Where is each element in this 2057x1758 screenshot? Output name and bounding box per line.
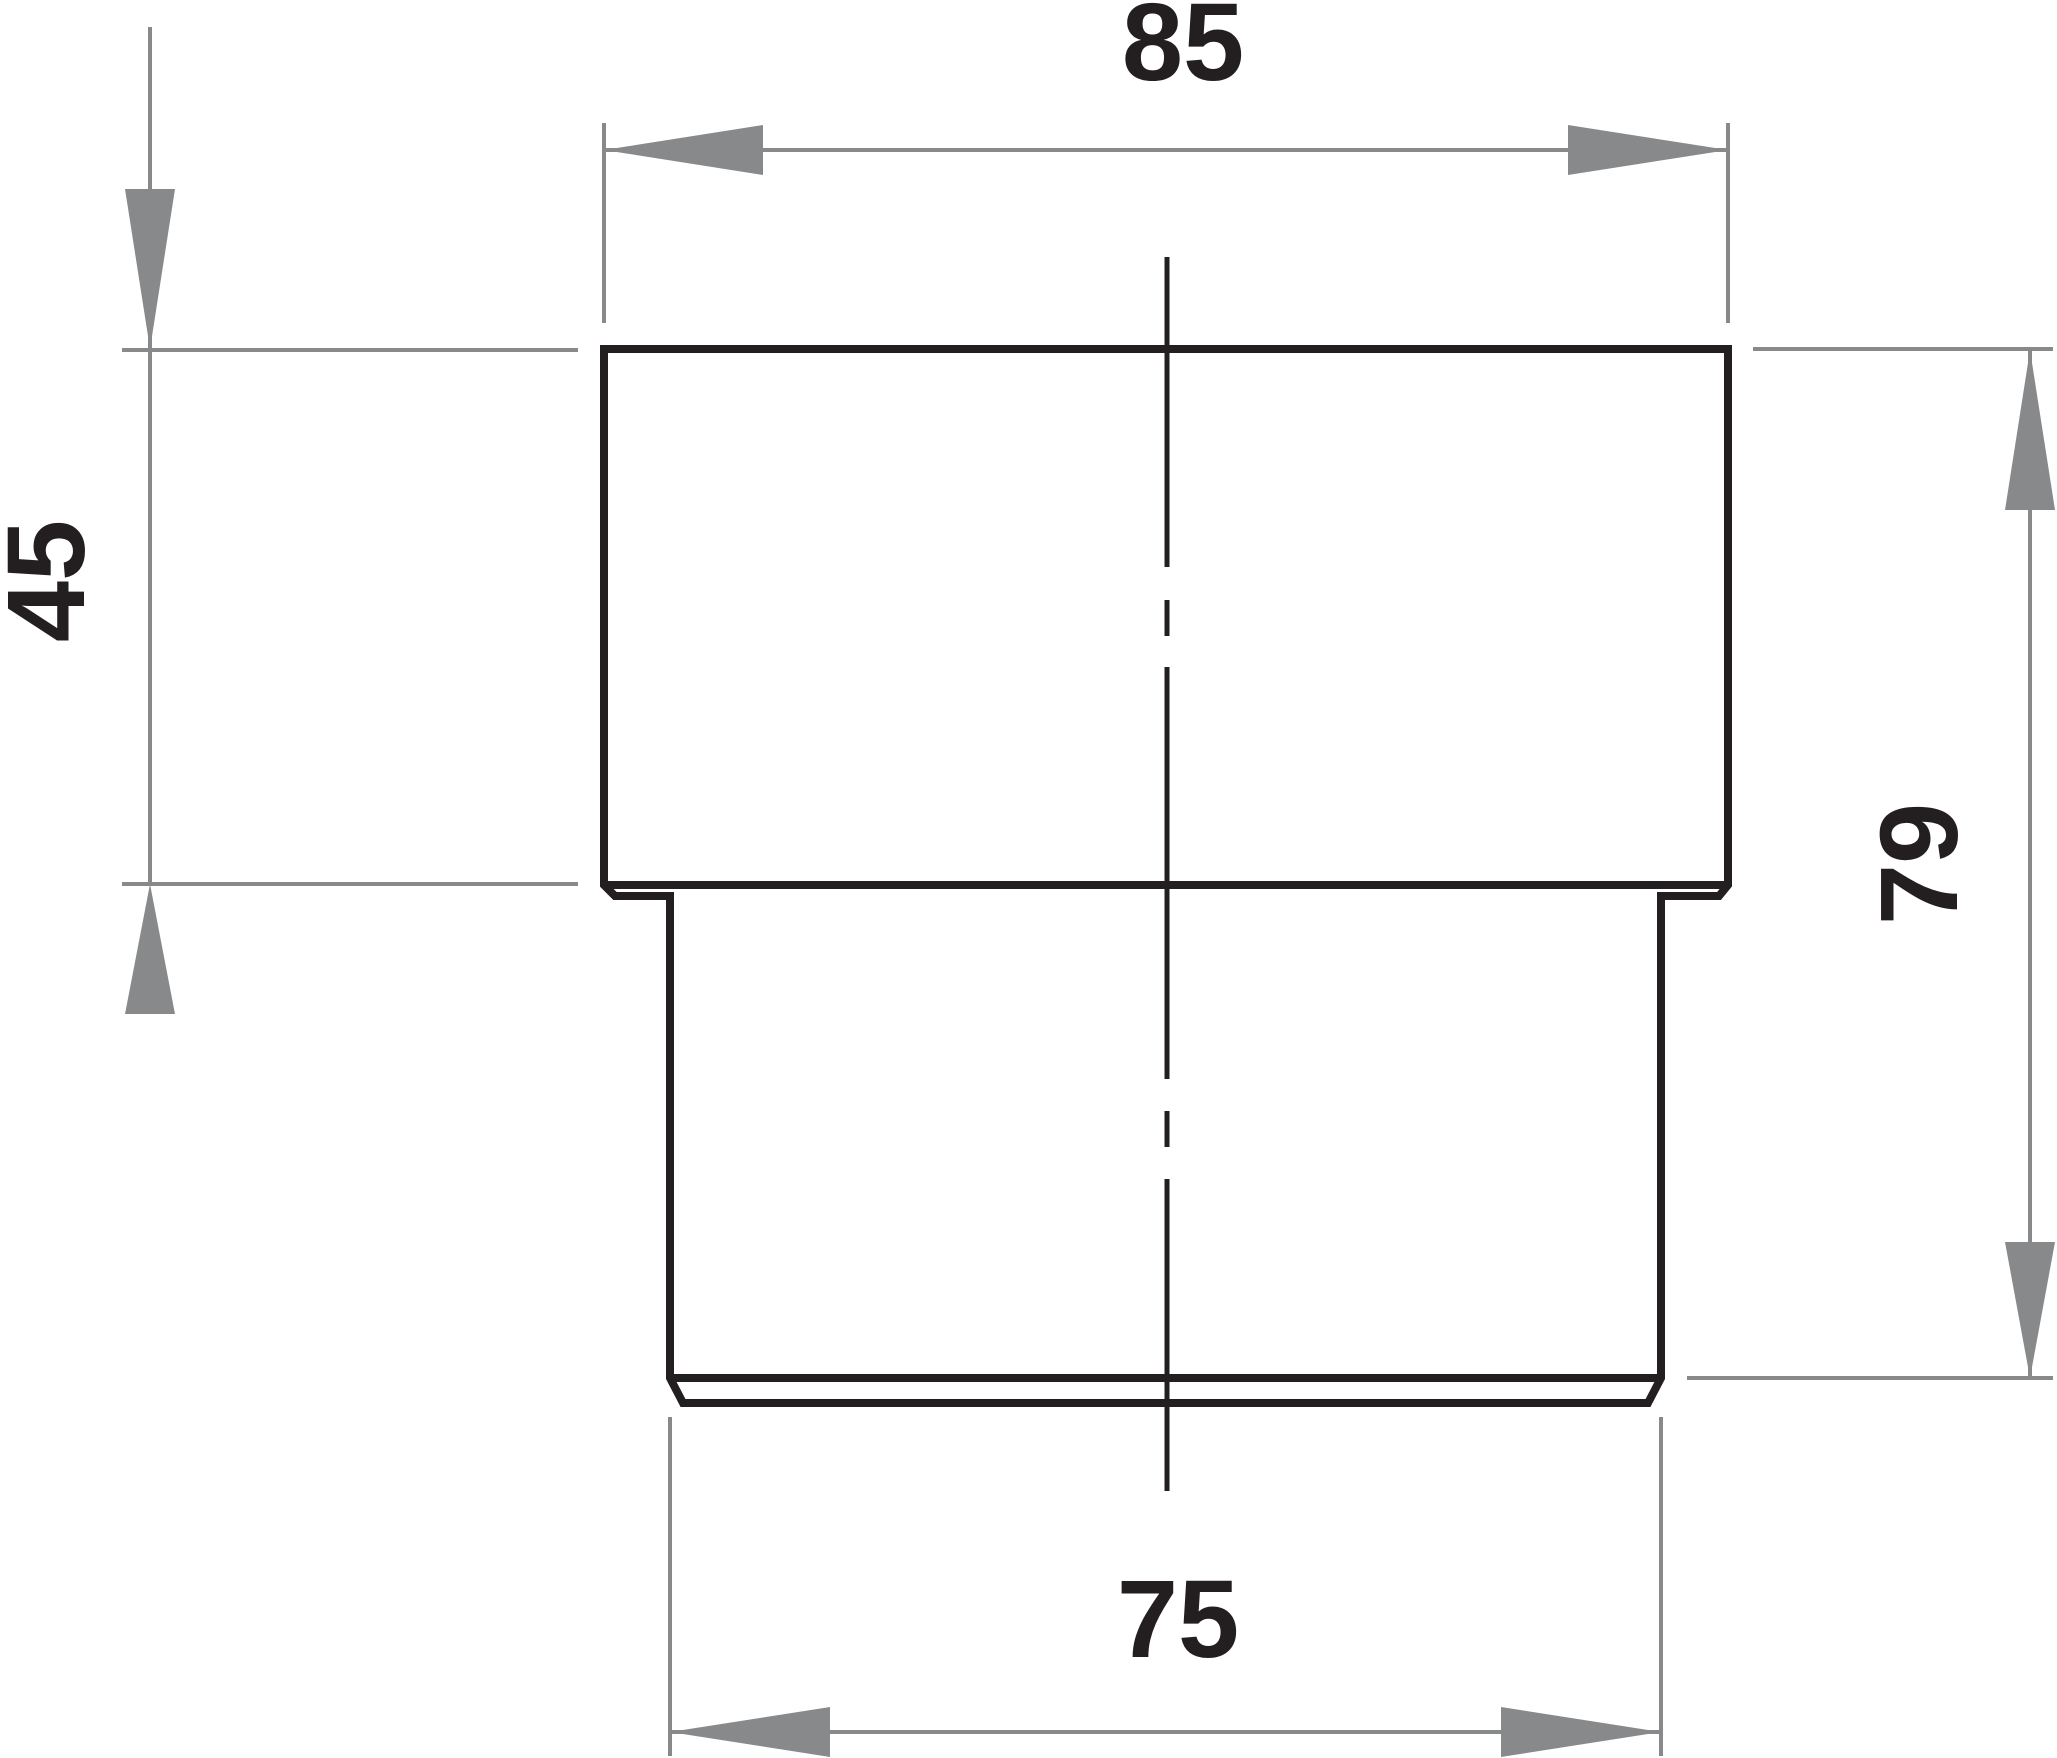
arrowhead-right-icon <box>1568 125 1728 175</box>
arrowhead-up-icon <box>125 884 175 1014</box>
technical-drawing-canvas: 85 45 79 75 <box>0 0 2057 1758</box>
arrowhead-right-icon <box>1501 1707 1661 1757</box>
arrowhead-left-icon <box>670 1707 830 1757</box>
arrowhead-down-icon <box>125 189 175 349</box>
arrowhead-left-icon <box>604 125 763 175</box>
dimension-label-right: 79 <box>1858 803 1981 925</box>
dimension-graphics <box>122 27 2055 1757</box>
dimension-label-left: 45 <box>0 520 108 642</box>
dimension-left-45 <box>122 27 578 1014</box>
arrowhead-up-icon <box>2005 350 2055 510</box>
reducer-fitting-drawing: 85 45 79 75 <box>0 0 2057 1758</box>
dimension-label-top: 85 <box>1122 0 1244 104</box>
arrowhead-down-icon <box>2005 1242 2055 1378</box>
dimension-label-bottom: 75 <box>1117 1558 1239 1681</box>
